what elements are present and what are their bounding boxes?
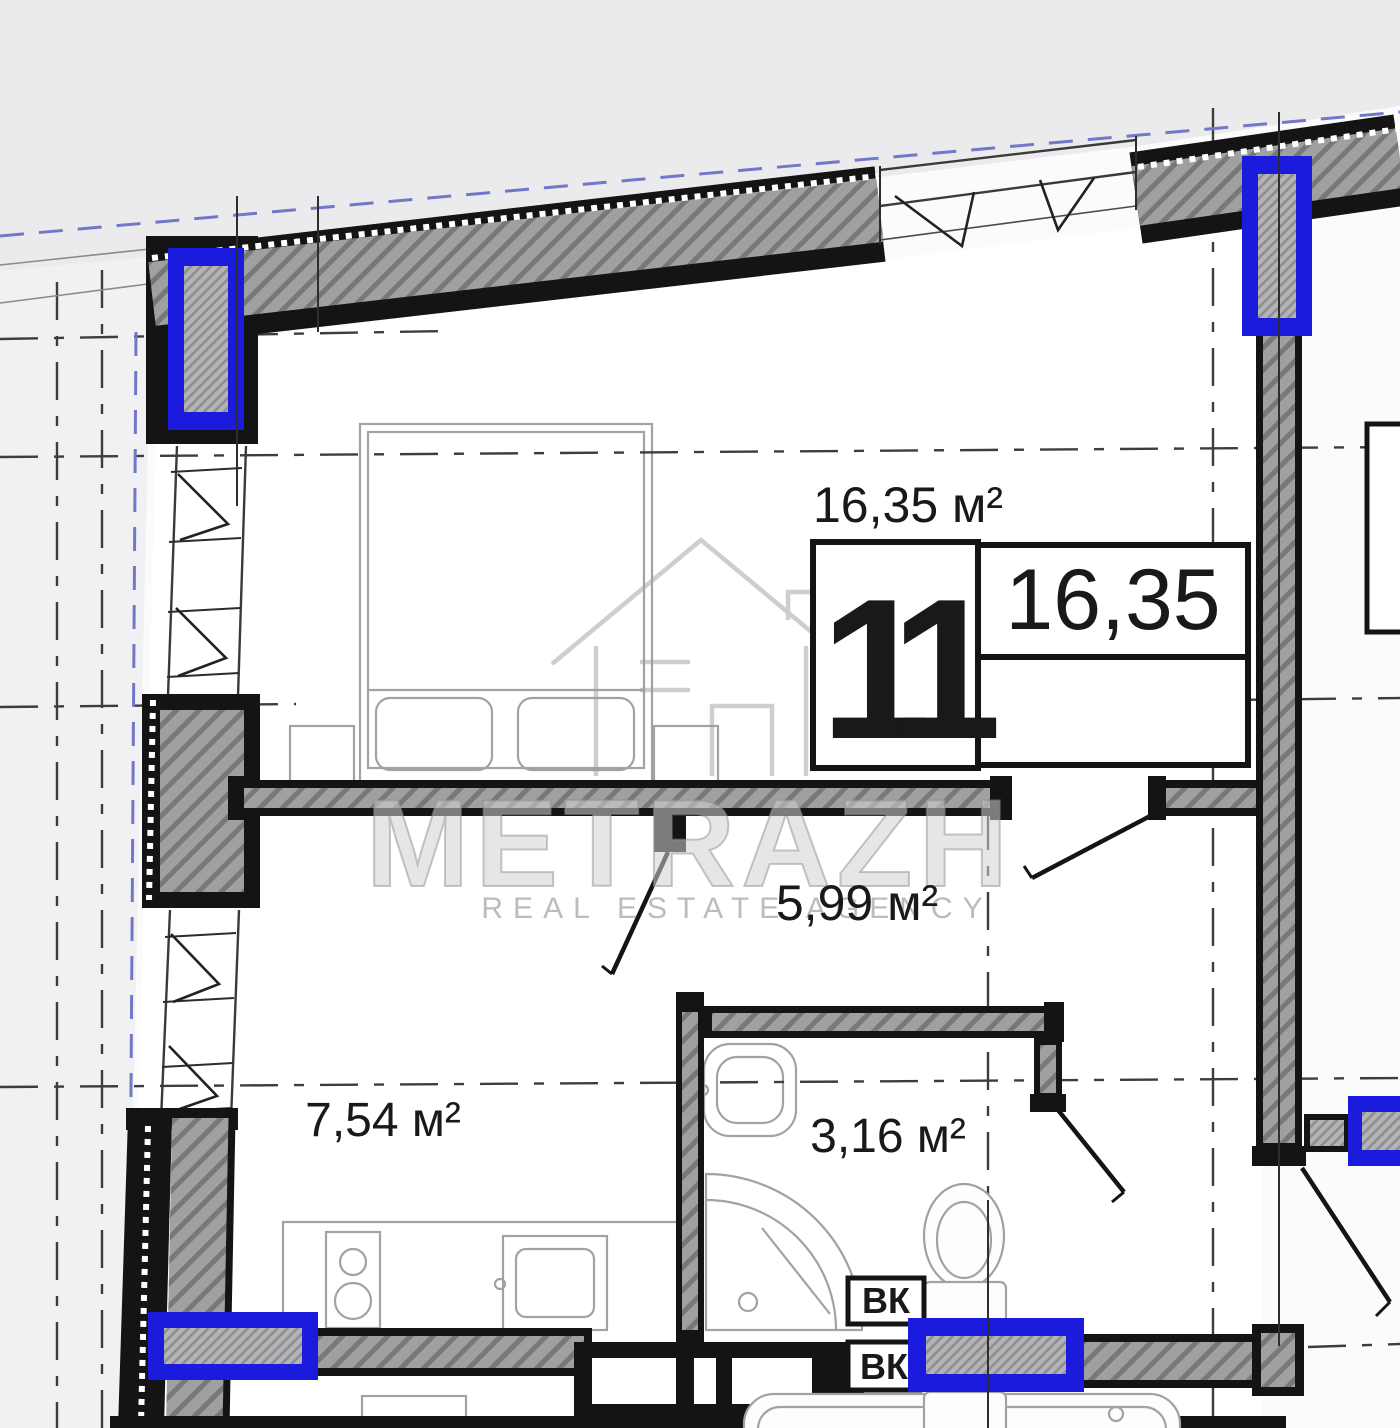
bathroom-wall-top-cap bbox=[1044, 1002, 1064, 1042]
neighbor-label-box bbox=[1367, 424, 1400, 632]
unit-label-box: 11 16,35 bbox=[813, 542, 1248, 781]
vent-hatch bbox=[184, 266, 228, 412]
left-wall-bottom-hatch bbox=[166, 1118, 232, 1428]
floor-plan-page: ВК ВК bbox=[0, 0, 1400, 1428]
vent-hatch bbox=[1258, 174, 1296, 318]
bathroom-wall-top-hatch bbox=[712, 1013, 1052, 1031]
vent-hatch bbox=[1362, 1112, 1400, 1150]
vent-block-bottomleft bbox=[148, 1312, 318, 1380]
bedroom-area-label: 16,35 м² bbox=[813, 477, 1003, 533]
living-area-label: 7,54 м² bbox=[305, 1094, 461, 1147]
bathroom-door-cap bbox=[1030, 1094, 1066, 1112]
partition-cap-left bbox=[228, 776, 244, 820]
unit-area-value: 16,35 bbox=[1005, 552, 1220, 648]
toilet-bowl bbox=[924, 1184, 1004, 1288]
floor-plan-drawing: ВК ВК bbox=[0, 0, 1400, 1428]
vent-block-topleft bbox=[168, 248, 244, 430]
unit-number: 11 bbox=[820, 558, 996, 781]
lower-unit-toilet-tank bbox=[924, 1392, 1006, 1428]
bottom-wall-right-hatch bbox=[1070, 1342, 1252, 1380]
vent-block-bathroom bbox=[908, 1318, 1084, 1392]
partition-wall-right-hatch bbox=[1158, 788, 1266, 808]
vent-hatch bbox=[164, 1328, 302, 1364]
vk-label-2: ВК bbox=[860, 1346, 909, 1387]
bathroom-wall-left-hatch bbox=[682, 1012, 698, 1330]
bathroom-area-label: 3,16 м² bbox=[810, 1110, 966, 1163]
vk-label-1: ВК bbox=[862, 1280, 911, 1321]
vent-block-topright bbox=[1242, 156, 1312, 336]
hallway-area-label: 5,99 м² bbox=[776, 875, 938, 931]
vent-block-right-edge bbox=[1348, 1096, 1400, 1166]
bathroom-wall-right-hatch bbox=[1040, 1045, 1056, 1093]
vent-hatch bbox=[926, 1336, 1066, 1374]
vent-connector-hatch bbox=[1310, 1120, 1344, 1146]
unit-empty-cell bbox=[978, 657, 1248, 765]
